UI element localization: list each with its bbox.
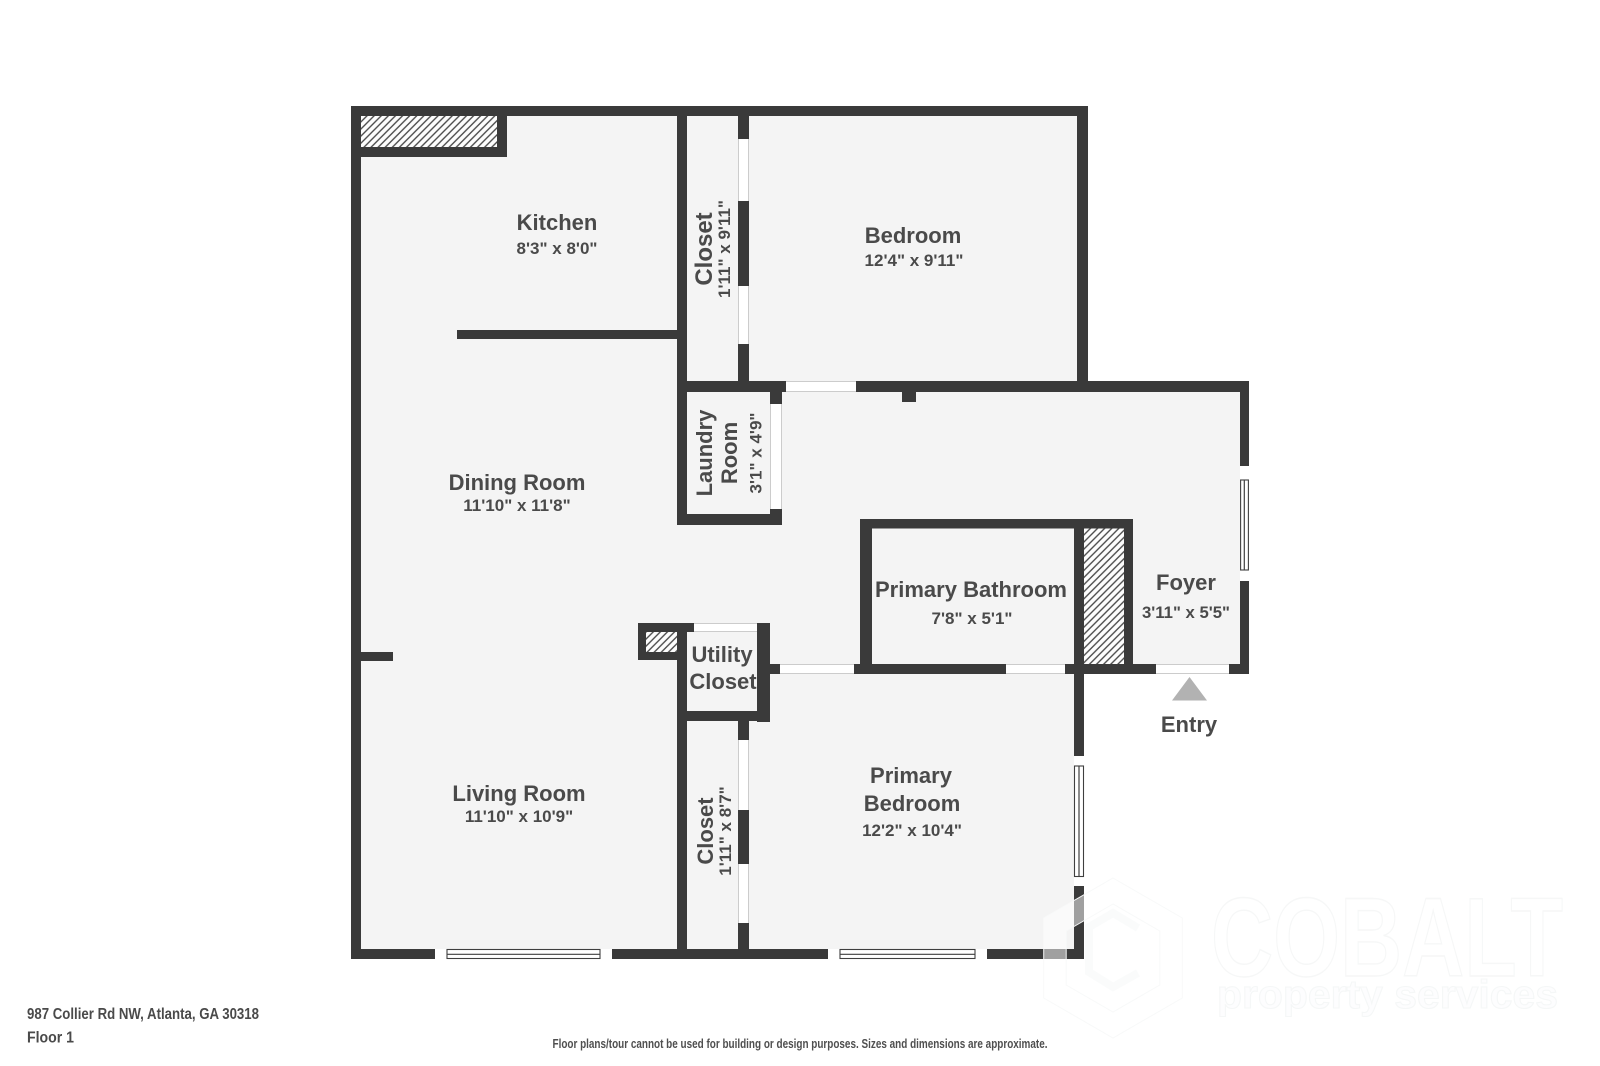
- svg-text:3'1" x 4'9": 3'1" x 4'9": [747, 413, 766, 494]
- svg-text:7'8" x 5'1": 7'8" x 5'1": [932, 609, 1013, 628]
- svg-text:Primary Bathroom: Primary Bathroom: [875, 577, 1067, 602]
- svg-text:12'4" x 9'11": 12'4" x 9'11": [865, 251, 964, 270]
- svg-text:Entry: Entry: [1161, 712, 1218, 737]
- svg-text:Floor plans/tour cannot be use: Floor plans/tour cannot be used for buil…: [553, 1036, 1048, 1051]
- svg-text:Living Room: Living Room: [452, 781, 585, 806]
- svg-text:Kitchen: Kitchen: [517, 210, 598, 235]
- svg-text:12'2" x 10'4": 12'2" x 10'4": [862, 821, 962, 840]
- svg-text:987 Collier Rd NW, Atlanta, GA: 987 Collier Rd NW, Atlanta, GA 30318: [27, 1006, 259, 1023]
- svg-text:Closet: Closet: [691, 212, 718, 285]
- svg-text:property services: property services: [1217, 973, 1558, 1017]
- svg-text:Room: Room: [717, 422, 742, 484]
- svg-text:Foyer: Foyer: [1156, 570, 1216, 595]
- svg-text:Closet: Closet: [689, 669, 757, 694]
- svg-text:Bedroom: Bedroom: [865, 223, 962, 248]
- svg-text:Dining Room: Dining Room: [449, 470, 586, 495]
- svg-text:1'11" x 8'7": 1'11" x 8'7": [716, 786, 735, 875]
- svg-text:Primary: Primary: [870, 763, 953, 788]
- svg-text:3'11" x 5'5": 3'11" x 5'5": [1142, 603, 1230, 622]
- svg-text:Floor 1: Floor 1: [27, 1030, 74, 1047]
- svg-text:11'10" x 10'9": 11'10" x 10'9": [465, 807, 573, 826]
- svg-text:8'3" x 8'0": 8'3" x 8'0": [517, 239, 598, 258]
- svg-text:Utility: Utility: [691, 642, 753, 667]
- svg-text:1'11" x 9'11": 1'11" x 9'11": [715, 200, 734, 298]
- svg-text:Closet: Closet: [693, 797, 718, 865]
- svg-text:Laundry: Laundry: [692, 409, 717, 497]
- svg-text:Bedroom: Bedroom: [864, 791, 961, 816]
- svg-text:11'10" x 11'8": 11'10" x 11'8": [463, 496, 570, 515]
